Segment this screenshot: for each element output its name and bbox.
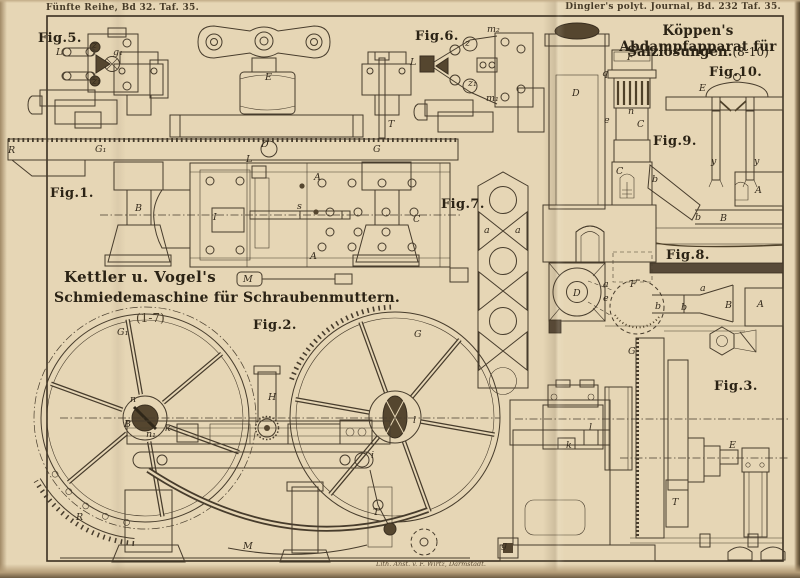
part-label: e xyxy=(604,115,610,126)
part-label: D xyxy=(260,139,269,150)
fig5-label: Fig.5. xyxy=(38,31,82,46)
part-label: y xyxy=(753,156,760,167)
scanned-plate-page: Fünfte Reihe, Bd 32. Taf. 35. Dingler's … xyxy=(0,0,800,578)
fig1-label: Fig.1. xyxy=(50,186,94,201)
fig2-label: Fig.2. xyxy=(253,318,297,333)
part-label: a xyxy=(484,225,490,236)
part-label: b xyxy=(681,302,687,313)
part-label: n₁ xyxy=(146,429,156,440)
part-label: L xyxy=(409,57,416,68)
part-label: B xyxy=(134,203,142,214)
left-section-title-line1: Kettler u. Vogel's xyxy=(64,268,216,286)
part-label: B xyxy=(123,419,131,430)
part-label: A xyxy=(756,299,764,310)
right-section-title-line2: Salzlösungen.(8-10) xyxy=(608,44,788,60)
left-section-title-line2: Schmiedemaschine für Schraubenmuttern. xyxy=(54,290,400,306)
part-label: y xyxy=(710,156,717,167)
part-label: k xyxy=(165,423,171,434)
fig7-label: Fig.7. xyxy=(441,197,485,212)
part-label: a xyxy=(700,283,706,294)
part-label: H xyxy=(267,392,277,403)
part-label: M xyxy=(242,541,253,552)
part-label: B xyxy=(724,300,732,311)
right-section-title-name: Salzlösungen. xyxy=(627,44,732,60)
part-label: n xyxy=(628,106,634,117)
part-label: C xyxy=(637,119,645,130)
fig2-drawing: Fig.2. G₁GBnn₁kHRMTil xyxy=(34,307,500,562)
part-label: I xyxy=(212,212,217,223)
part-label: e xyxy=(603,293,609,304)
lithographer-credit: Lith. Anst. v. F. Wirtz, Darmstadt. xyxy=(376,560,486,568)
plate-drawing: Fig.5. Lzz₁g₁ Fig.6. Lzz₁m₂m₁ xyxy=(0,0,800,578)
fig9-label: Fig.9. xyxy=(653,134,697,149)
fig8-label: Fig.8. xyxy=(666,248,710,263)
part-label: G xyxy=(414,329,422,340)
part-label: E xyxy=(698,83,706,94)
part-label: D xyxy=(572,288,581,299)
part-label: g xyxy=(501,540,507,551)
part-label: a xyxy=(603,279,609,290)
part-label: R xyxy=(75,512,83,523)
part-label: G₁ xyxy=(117,327,128,338)
part-label: L xyxy=(245,154,252,165)
part-label: A xyxy=(313,172,321,183)
part-label: A xyxy=(754,185,762,196)
fig6-drawing: Fig.6. Lzz₁m₂m₁ xyxy=(409,24,544,132)
part-label: T xyxy=(373,507,380,518)
fig3-label: Fig.3. xyxy=(714,379,758,394)
part-label: b xyxy=(695,212,701,223)
fig7-drawing: Fig.7. aa xyxy=(441,172,528,395)
part-label: D xyxy=(571,88,580,99)
fig5-drawing: Fig.5. Lzz₁g₁ xyxy=(28,28,168,128)
part-label: k xyxy=(566,440,572,451)
part-label: B xyxy=(719,213,727,224)
part-label: G xyxy=(628,346,636,357)
part-label: G xyxy=(373,144,381,155)
part-label: C xyxy=(413,214,421,225)
part-label: T xyxy=(672,497,679,508)
part-label: F xyxy=(629,279,637,290)
part-label: z₁ xyxy=(91,76,101,87)
part-label: E xyxy=(264,72,272,83)
part-label: R xyxy=(7,145,15,156)
part-label: C xyxy=(616,166,624,177)
part-label: q xyxy=(602,68,608,79)
part-label: L xyxy=(55,47,62,58)
part-label: s xyxy=(297,201,302,212)
part-label: z xyxy=(91,40,98,51)
part-label: z₁ xyxy=(467,78,477,89)
part-label: A xyxy=(309,251,317,262)
fig10-drawing: Fig.10. Eyy xyxy=(666,65,783,187)
part-label: l xyxy=(413,415,416,426)
part-label: b xyxy=(655,301,661,312)
part-label: T xyxy=(388,119,395,130)
part-label: l xyxy=(589,422,592,433)
part-label: n xyxy=(130,394,136,405)
part-label: M xyxy=(242,274,253,285)
fig8-drawing: Fig.8. DFaebbaBA xyxy=(549,248,783,334)
part-label: m₂ xyxy=(487,24,500,35)
right-section-figure-range: (8-10) xyxy=(732,45,768,59)
part-label: E xyxy=(728,440,736,451)
fig1-drawing: Fig.1. RG₁DGTEBCAALIsM xyxy=(7,26,468,286)
left-section-figure-range: (1-7) xyxy=(136,311,165,325)
part-label: b xyxy=(652,174,658,185)
fig6-label: Fig.6. xyxy=(415,29,459,44)
part-label: z xyxy=(464,38,471,49)
part-label: i xyxy=(371,450,374,461)
part-label: G₁ xyxy=(95,144,106,155)
part-label: a xyxy=(515,225,521,236)
part-label: m₁ xyxy=(486,93,499,104)
fig3-drawing: Fig.3. GTEklg xyxy=(498,327,790,561)
fig10-label: Fig.10. xyxy=(709,65,762,80)
